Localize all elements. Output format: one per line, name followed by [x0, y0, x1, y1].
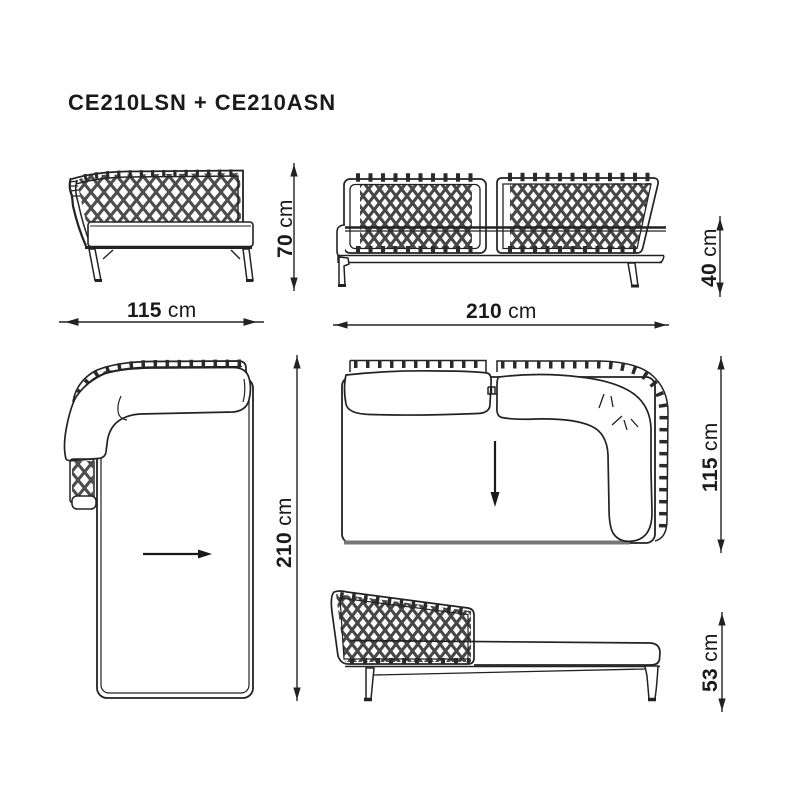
svg-text:70 cm: 70 cm — [274, 199, 297, 258]
svg-text:210 cm: 210 cm — [273, 497, 296, 568]
svg-text:40 cm: 40 cm — [698, 228, 721, 287]
svg-text:53 cm: 53 cm — [699, 633, 722, 692]
svg-text:115 cm: 115 cm — [127, 299, 197, 322]
svg-text:210 cm: 210 cm — [466, 300, 537, 323]
svg-text:CE210LSN + CE210ASN: CE210LSN + CE210ASN — [68, 90, 336, 115]
svg-text:115 cm: 115 cm — [699, 422, 722, 492]
